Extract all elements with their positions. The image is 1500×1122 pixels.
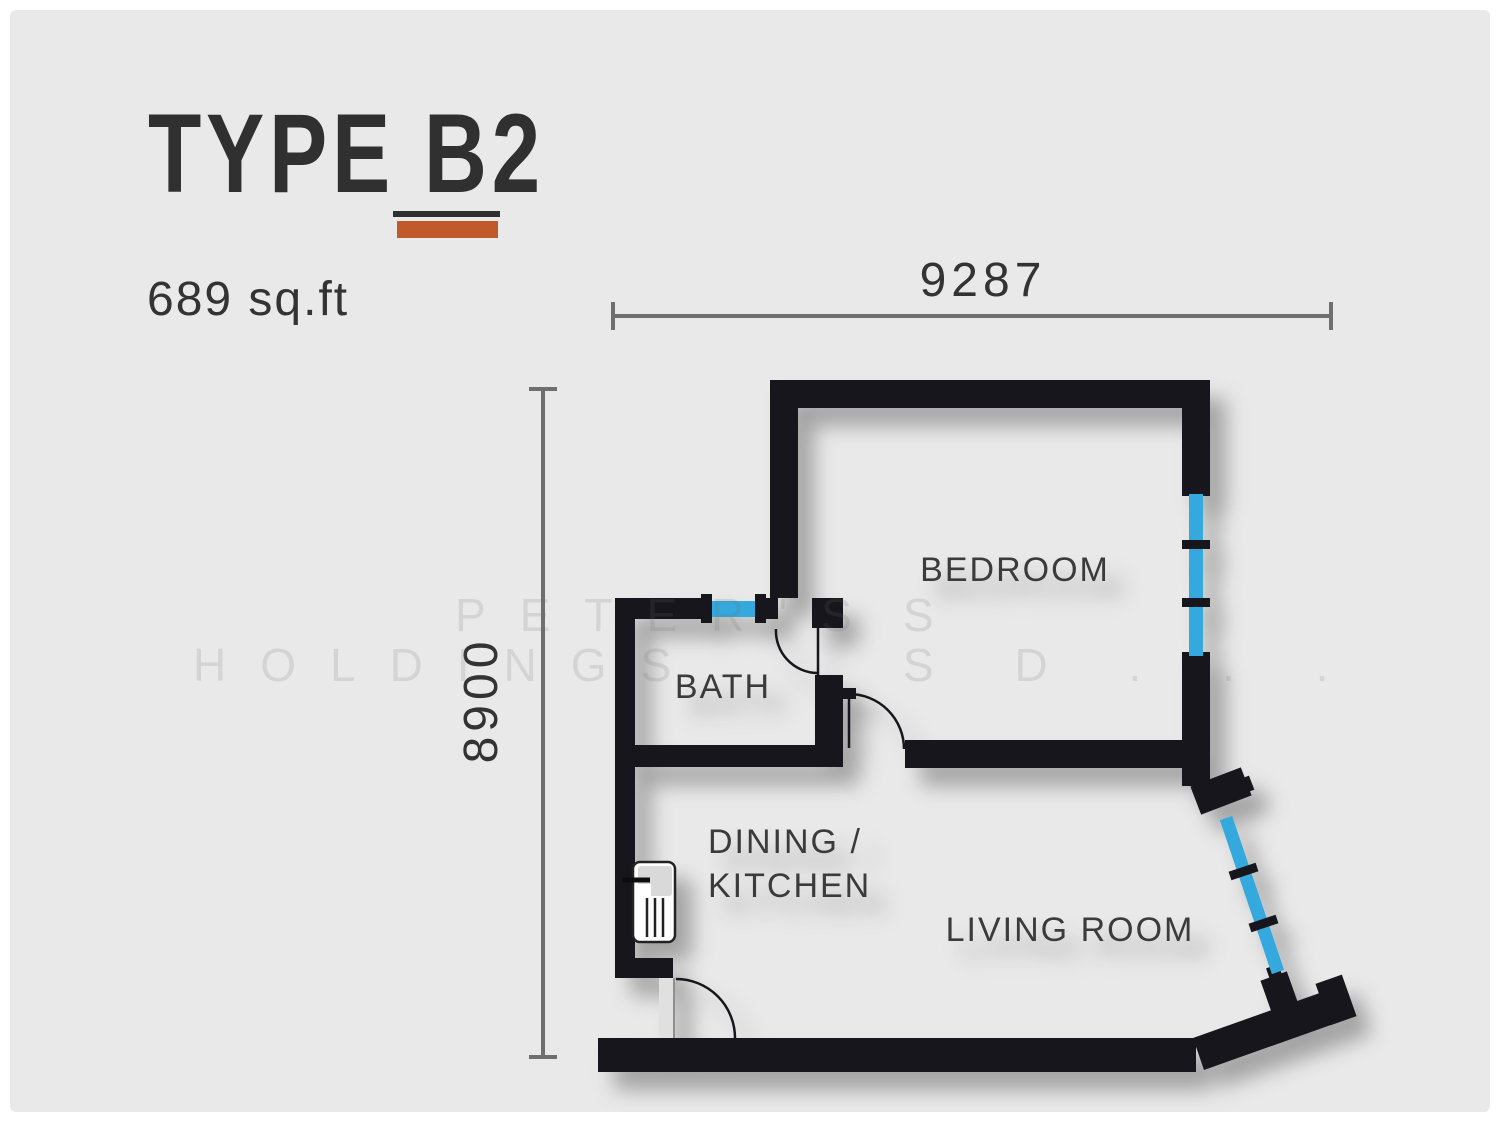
door-arc (849, 694, 904, 749)
entrance-door-leaf (659, 978, 673, 1038)
watermark-text: S (903, 589, 968, 641)
bedroom-window (1182, 494, 1210, 656)
dimension-top: 9287 (612, 254, 1332, 330)
floorplan: BEDROOM BATH DINING / KITCHEN LIVING ROO… (598, 380, 1357, 1072)
window-mullion (1230, 867, 1257, 876)
watermark-text: PETER'S (455, 589, 886, 641)
window-mullion (1182, 598, 1210, 607)
room-label-dining-line1: DINING / (708, 823, 862, 861)
watermark-text: S D . . . (903, 639, 1362, 691)
dimension-left: 8900 (455, 388, 557, 1058)
room-label-bedroom: BEDROOM (920, 551, 1110, 589)
floorplan-drawing: 9287 8900 (0, 0, 1500, 1122)
room-label-living: LIVING ROOM (946, 911, 1195, 949)
window-mullion (1182, 540, 1210, 549)
dimension-top-label: 9287 (920, 254, 1047, 307)
door-arc (676, 979, 735, 1038)
living-room-angled-wall (1190, 767, 1356, 1070)
bottom-wall (598, 1038, 1196, 1072)
watermark-text: HOLDINGS (193, 639, 705, 691)
bedroom-door (842, 688, 904, 749)
living-room-window (1226, 818, 1278, 972)
entrance (598, 958, 1196, 1072)
room-label-dining-line2: KITCHEN (708, 867, 871, 905)
